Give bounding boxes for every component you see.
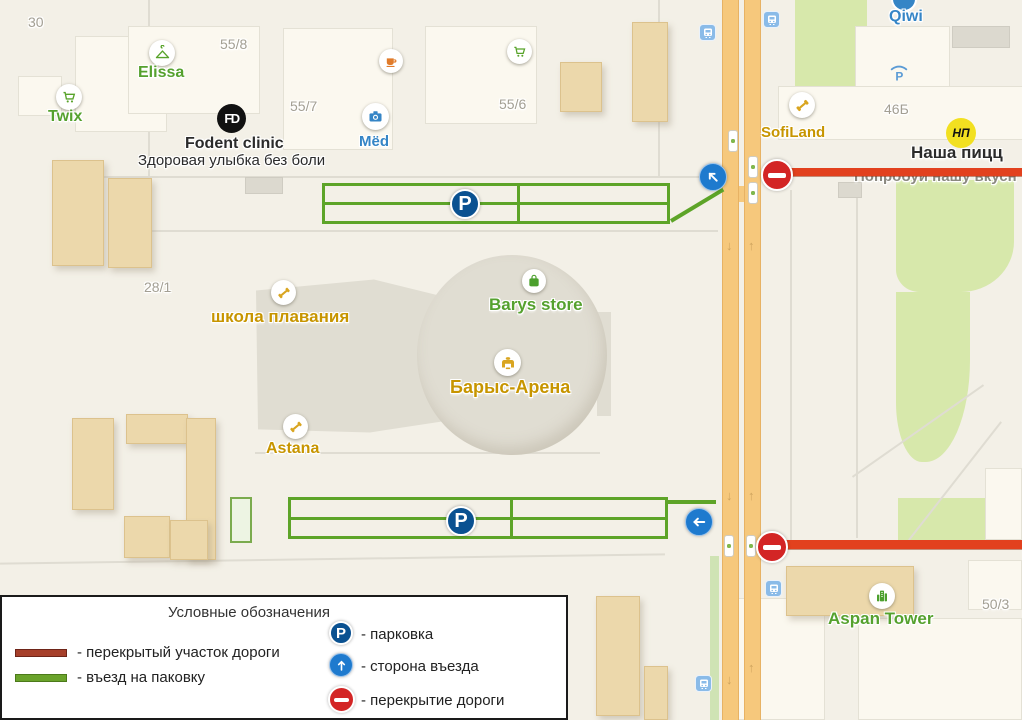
traffic-light-icon: [746, 535, 756, 557]
building: [170, 520, 208, 560]
closed-road-bottom: [768, 540, 1022, 549]
traffic-light-icon: [748, 182, 758, 204]
address-label: 50/3: [982, 596, 1009, 612]
address-label: 55/8: [220, 36, 247, 52]
bus-stop-icon[interactable]: [763, 11, 780, 28]
poi-label-barys-arena: Барыс-Арена: [450, 377, 570, 398]
poi-label-med: Mëd: [359, 133, 389, 150]
bus-stop-icon[interactable]: [699, 24, 716, 41]
parking-icon: P: [329, 621, 353, 645]
parking-area-top: [322, 183, 670, 224]
poi-label-aspan-tower: Aspan Tower: [828, 609, 933, 629]
hanger-icon[interactable]: [149, 40, 175, 66]
dumbbell-icon[interactable]: [271, 280, 296, 305]
map-canvas: ↓ ↑ ↓ ↑ ↓ ↑ Попробуй нашу вкусн P P: [0, 0, 1022, 720]
building: [560, 62, 602, 112]
bus-stop-icon[interactable]: [695, 675, 712, 692]
entry-side-icon: [329, 653, 353, 677]
legend-title: Условные обозначения: [2, 604, 496, 621]
poi-label-sofiland: SofiLand: [761, 124, 825, 141]
legend-item-label: - въезд на паковку: [77, 669, 205, 686]
address-label: 55/7: [290, 98, 317, 114]
address-label: 55/6: [499, 96, 526, 112]
lane-arrow-down: ↓: [726, 238, 733, 253]
poi-label-barys-store: Barys store: [489, 295, 583, 315]
road-closure-icon: [328, 686, 355, 713]
small-parking-lot: [230, 497, 252, 543]
hockey-arena-icon[interactable]: [494, 349, 521, 376]
lane-arrow-up: ↑: [748, 238, 755, 253]
poi-label-qiwi: Qiwi: [889, 8, 923, 26]
parking-divider: [517, 186, 520, 221]
bus-stop-icon[interactable]: [765, 580, 782, 597]
traffic-light-icon: [748, 156, 758, 178]
poi-label-astana: Astana: [266, 440, 319, 458]
road-connector: [739, 186, 744, 202]
tower-building-icon[interactable]: [869, 583, 895, 609]
poi-tagline-fodent: Здоровая улыбка без боли: [138, 152, 325, 169]
shop-cart-icon[interactable]: [507, 39, 532, 64]
parking-entry-line-top: [670, 188, 724, 223]
entry-direction-arrow-left: [685, 508, 713, 536]
address-label: 46Б: [884, 101, 909, 117]
lane-arrow-up: ↑: [748, 660, 755, 675]
shop-cart-icon[interactable]: [56, 84, 82, 110]
parking-entrance-swatch: [15, 674, 67, 682]
address-label: 30: [28, 14, 44, 30]
building: [985, 468, 1022, 540]
legend-item-label: - перекрытый участок дороги: [77, 644, 280, 661]
building: [596, 596, 640, 716]
poi-label-twix: Twix: [48, 108, 82, 126]
svg-text:P: P: [895, 69, 903, 83]
no-entry-sign: [756, 531, 788, 563]
building-50-3: [858, 618, 1022, 720]
building-55-7: [283, 28, 393, 150]
parking-icon: P: [450, 189, 480, 219]
road-lane-left: [722, 0, 739, 720]
building: [108, 178, 152, 268]
address-label: 28/1: [144, 279, 171, 295]
street: [0, 553, 665, 564]
parking-entry-line-bottom: [668, 500, 716, 504]
traffic-light-icon: [724, 535, 734, 557]
street: [60, 176, 715, 178]
building: [245, 177, 283, 194]
legend-item-label: - сторона въезда: [361, 658, 479, 675]
parking-divider: [510, 500, 513, 536]
building: [72, 418, 114, 510]
camera-icon[interactable]: [362, 103, 389, 130]
parking-area-bottom: [288, 497, 668, 539]
parking-icon: P: [446, 506, 476, 536]
building: [632, 22, 668, 122]
lane-arrow-up: ↑: [748, 488, 755, 503]
poi-label-fodent: Fodent clinic: [185, 135, 284, 153]
street: [790, 190, 792, 540]
legend-item-label: - перекрытие дороги: [361, 692, 504, 709]
street: [110, 230, 718, 232]
closed-road-swatch: [15, 649, 67, 657]
building: [126, 414, 188, 444]
poi-label-swim-school: школа плавания: [211, 307, 349, 327]
parking-divider: [291, 517, 665, 520]
poi-label-elissa: Elissa: [138, 64, 184, 82]
lane-arrow-down: ↓: [726, 672, 733, 687]
building: [952, 26, 1010, 48]
dumbbell-icon[interactable]: [283, 414, 308, 439]
entry-direction-arrow-sw: [699, 163, 727, 191]
coffee-cup-icon[interactable]: [379, 49, 403, 73]
shopping-bag-icon[interactable]: [522, 269, 546, 293]
fodent-logo-icon[interactable]: FD: [217, 104, 246, 133]
building: [644, 666, 668, 720]
parking-divider: [325, 202, 667, 205]
dumbbell-icon[interactable]: [789, 92, 815, 118]
road-lane-right: [744, 0, 761, 720]
legend-panel: Условные обозначения - перекрытый участо…: [0, 595, 568, 720]
closed-road-top: [770, 168, 1022, 176]
building: [52, 160, 104, 266]
legend-item-label: - парковка: [361, 626, 433, 643]
roadside-green-strip: [710, 556, 719, 720]
street: [856, 190, 858, 538]
building: [124, 516, 170, 558]
poi-label-nasha-pizza: Наша пицц: [911, 143, 1003, 163]
lane-arrow-down: ↓: [726, 488, 733, 503]
no-entry-sign: [761, 159, 793, 191]
park-area: [896, 180, 1014, 292]
traffic-light-icon: [728, 130, 738, 152]
